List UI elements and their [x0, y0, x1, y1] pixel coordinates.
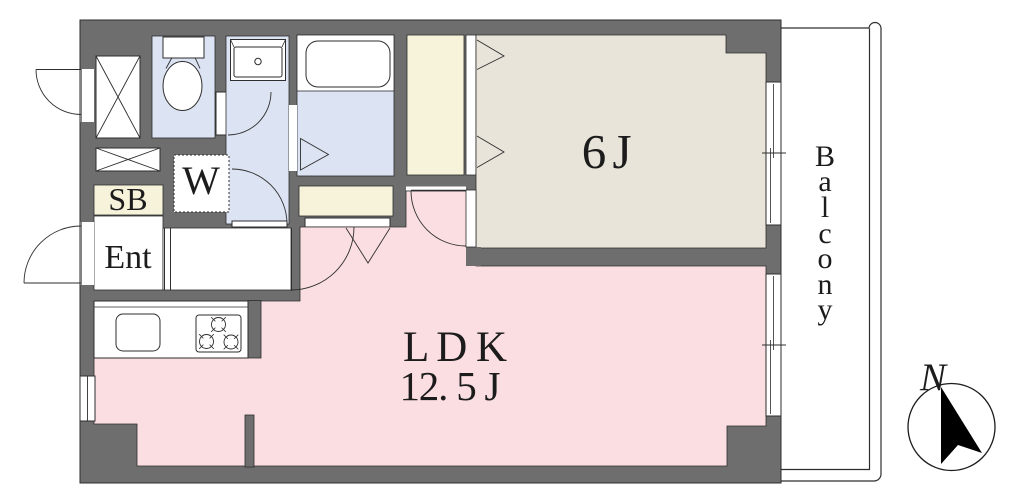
svg-text:6: 6 — [582, 124, 607, 179]
svg-text:SB: SB — [108, 181, 147, 217]
svg-text:Ent: Ent — [104, 239, 152, 276]
svg-text:J: J — [612, 124, 631, 179]
svg-text:W: W — [182, 158, 220, 203]
svg-text:y: y — [818, 293, 833, 326]
svg-text:12. 5 J: 12. 5 J — [400, 363, 501, 409]
svg-text:N: N — [919, 356, 948, 399]
